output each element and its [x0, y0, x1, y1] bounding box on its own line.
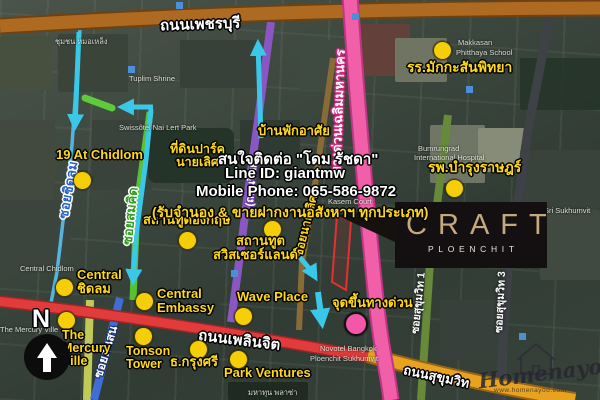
poi-label-wave-place: Wave Place	[237, 290, 308, 304]
road-label-phetchaburi: ถนนเพชรบุรี	[160, 11, 241, 38]
poi-label-line: Embassy	[157, 301, 214, 315]
base-label-tuplim-shrine: Tuplim Shrine	[129, 74, 175, 83]
poi-dot-bumrungrad	[445, 179, 464, 198]
base-label-makkasan-school: Makkasan	[458, 38, 492, 47]
poi-label-line: Central	[77, 268, 122, 282]
compass-rose	[24, 334, 70, 380]
contact-services: (รับจำนอง & ขายฝากงานอสังหาฯ ทุกประเภท)	[152, 202, 428, 224]
poi-label-line: Tower	[126, 358, 170, 371]
compass-north-label: N	[32, 305, 50, 334]
property-plot-outline	[332, 215, 351, 290]
transit-icon	[231, 270, 238, 277]
poi-label-nai-lert-park: ที่ดินปาร์ค นายเลิศ	[170, 143, 225, 169]
contact-line-id: Line ID: giantmw	[225, 165, 345, 182]
watermark-url: www.homenayoo.com	[494, 387, 566, 394]
poi-dot-british-embassy	[178, 231, 197, 250]
compass-arrow-icon	[24, 334, 70, 380]
road-label-soi-chidlom: ซอยชิดลม	[53, 160, 84, 221]
poi-label-makkasan-school: รร.มักกะสันพิทยา	[407, 60, 512, 75]
road-label-sukhumvit: ถนนสุขุมวิท	[402, 359, 472, 393]
transit-icon	[466, 86, 473, 93]
base-label-makkasan-school-2: Phitthaya School	[456, 48, 512, 57]
poi-label-line: ชิดลม	[77, 282, 122, 296]
poi-label-central-embassy: Central Embassy	[157, 287, 214, 314]
base-label-bumrungrad: Bumrungrad	[418, 144, 459, 153]
watermark: Homenayoo www.homenayoo.com	[470, 336, 600, 400]
poi-label-central-chidlom: Central ชิดลม	[77, 268, 122, 295]
road-phetchaburi	[0, 8, 600, 26]
poi-label-krungsri-bank: ธ.กรุงศรี	[170, 355, 218, 369]
poi-label-19-at-chidlom: 19 At Chidlom	[56, 148, 143, 162]
poi-label-line: Central	[157, 287, 214, 301]
contact-phone: Mobile Phone: 065-586-9872	[196, 183, 396, 200]
base-label-hotel-2: Ploenchit Sukhumvit	[310, 354, 378, 363]
base-label-central-chidlom: Central Chidlom	[20, 264, 74, 273]
base-label-hotel: Novotel Bangkok	[320, 344, 377, 353]
route-green-segment	[85, 98, 112, 108]
poi-label-line: สวิสเซอร์แลนด์	[213, 248, 298, 262]
transit-icon	[352, 13, 359, 20]
transit-icon	[128, 66, 135, 73]
poi-label-line: สถานทูต	[213, 234, 298, 248]
route-arrow-to-ploenchit	[318, 292, 322, 323]
poi-label-expressway-entry: จุดขึ้นทางด่วน	[332, 296, 413, 310]
poi-label-residence: บ้านพักอาศัย	[258, 124, 330, 138]
poi-dot-makkasan-school	[433, 41, 452, 60]
poi-label-park-ventures: Park Ventures	[224, 366, 311, 380]
transit-icon	[176, 2, 183, 9]
poi-dot-central-chidlom	[55, 278, 74, 297]
poi-dot-expressway-entry	[344, 312, 368, 336]
poi-label-line: นายเลิศ	[170, 156, 225, 169]
poi-label-bumrungrad: รพ.บำรุงราษฎร์	[428, 160, 521, 175]
craft-logo-sub: PLOENCHIT	[395, 244, 547, 254]
base-label-mahatun: มหาทุน พลาซ่า	[248, 387, 297, 399]
poi-dot-wave-place	[234, 307, 253, 326]
poi-dot-19-at-chidlom	[73, 171, 92, 190]
base-label-swissotel: Swissôtel Nai Lert Park	[119, 123, 197, 132]
road-label-soi-sukhumvit-3: ซอยสุขุมวิท 3	[490, 271, 510, 333]
poi-dot-central-embassy	[135, 292, 154, 311]
poi-label-swiss-embassy: สถานทูต สวิสเซอร์แลนด์	[213, 234, 298, 261]
map-canvas: ชุมชน หมอเหล็ง Tuplim Shrine Swissôtel N…	[0, 0, 600, 400]
base-label-community: ชุมชน หมอเหล็ง	[55, 36, 108, 48]
road-label-soi-somkid: ซอยสมคิด	[117, 186, 144, 246]
poi-label-tonson-tower: Tonson Tower	[126, 345, 170, 371]
